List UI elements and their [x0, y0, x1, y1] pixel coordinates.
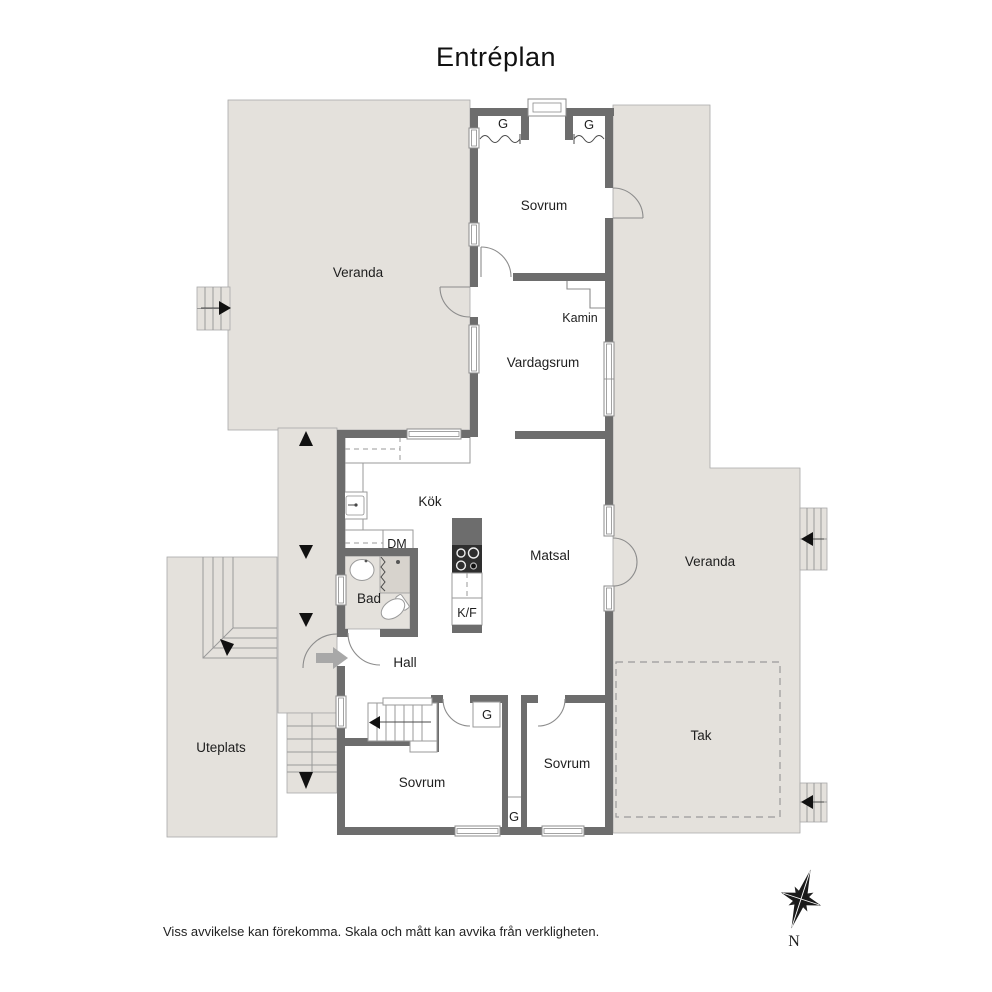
fireplace-outline	[567, 281, 605, 308]
label-vardagsrum: Vardagsrum	[507, 355, 580, 370]
label-closet-shaft: G	[509, 809, 519, 824]
label-uteplats: Uteplats	[196, 740, 246, 755]
label-kf: K/F	[457, 606, 477, 620]
uteplats-area	[167, 557, 277, 837]
compass-north-label: N	[788, 933, 800, 950]
disclaimer-text: Viss avvikelse kan förekomma. Skala och …	[163, 924, 599, 939]
compass: N	[771, 863, 830, 950]
label-tak: Tak	[690, 728, 711, 743]
label-hall: Hall	[393, 655, 416, 670]
label-closet-top-left: G	[498, 116, 508, 131]
label-closet-top-right: G	[584, 117, 594, 132]
label-kamin: Kamin	[562, 311, 597, 325]
veranda-right-area	[613, 105, 800, 833]
floor-plan-drawing: Veranda Sovrum Kamin Vardagsrum Kök DM B…	[0, 0, 992, 992]
compass-rose-icon	[771, 863, 830, 935]
floorplan-page: Entréplan	[0, 0, 992, 992]
label-sovrum-bottom-left: Sovrum	[399, 775, 446, 790]
label-dm: DM	[387, 537, 406, 551]
label-veranda-left: Veranda	[333, 265, 384, 280]
label-matsal: Matsal	[530, 548, 570, 563]
walkway-area	[278, 428, 337, 713]
washbasin	[350, 560, 374, 581]
closet-curtains	[480, 134, 604, 144]
label-bad: Bad	[357, 591, 381, 606]
label-closet-hall: G	[482, 707, 492, 722]
label-sovrum-top: Sovrum	[521, 198, 568, 213]
label-sovrum-bottom-right: Sovrum	[544, 756, 591, 771]
label-veranda-right: Veranda	[685, 554, 736, 569]
label-kok: Kök	[418, 494, 442, 509]
